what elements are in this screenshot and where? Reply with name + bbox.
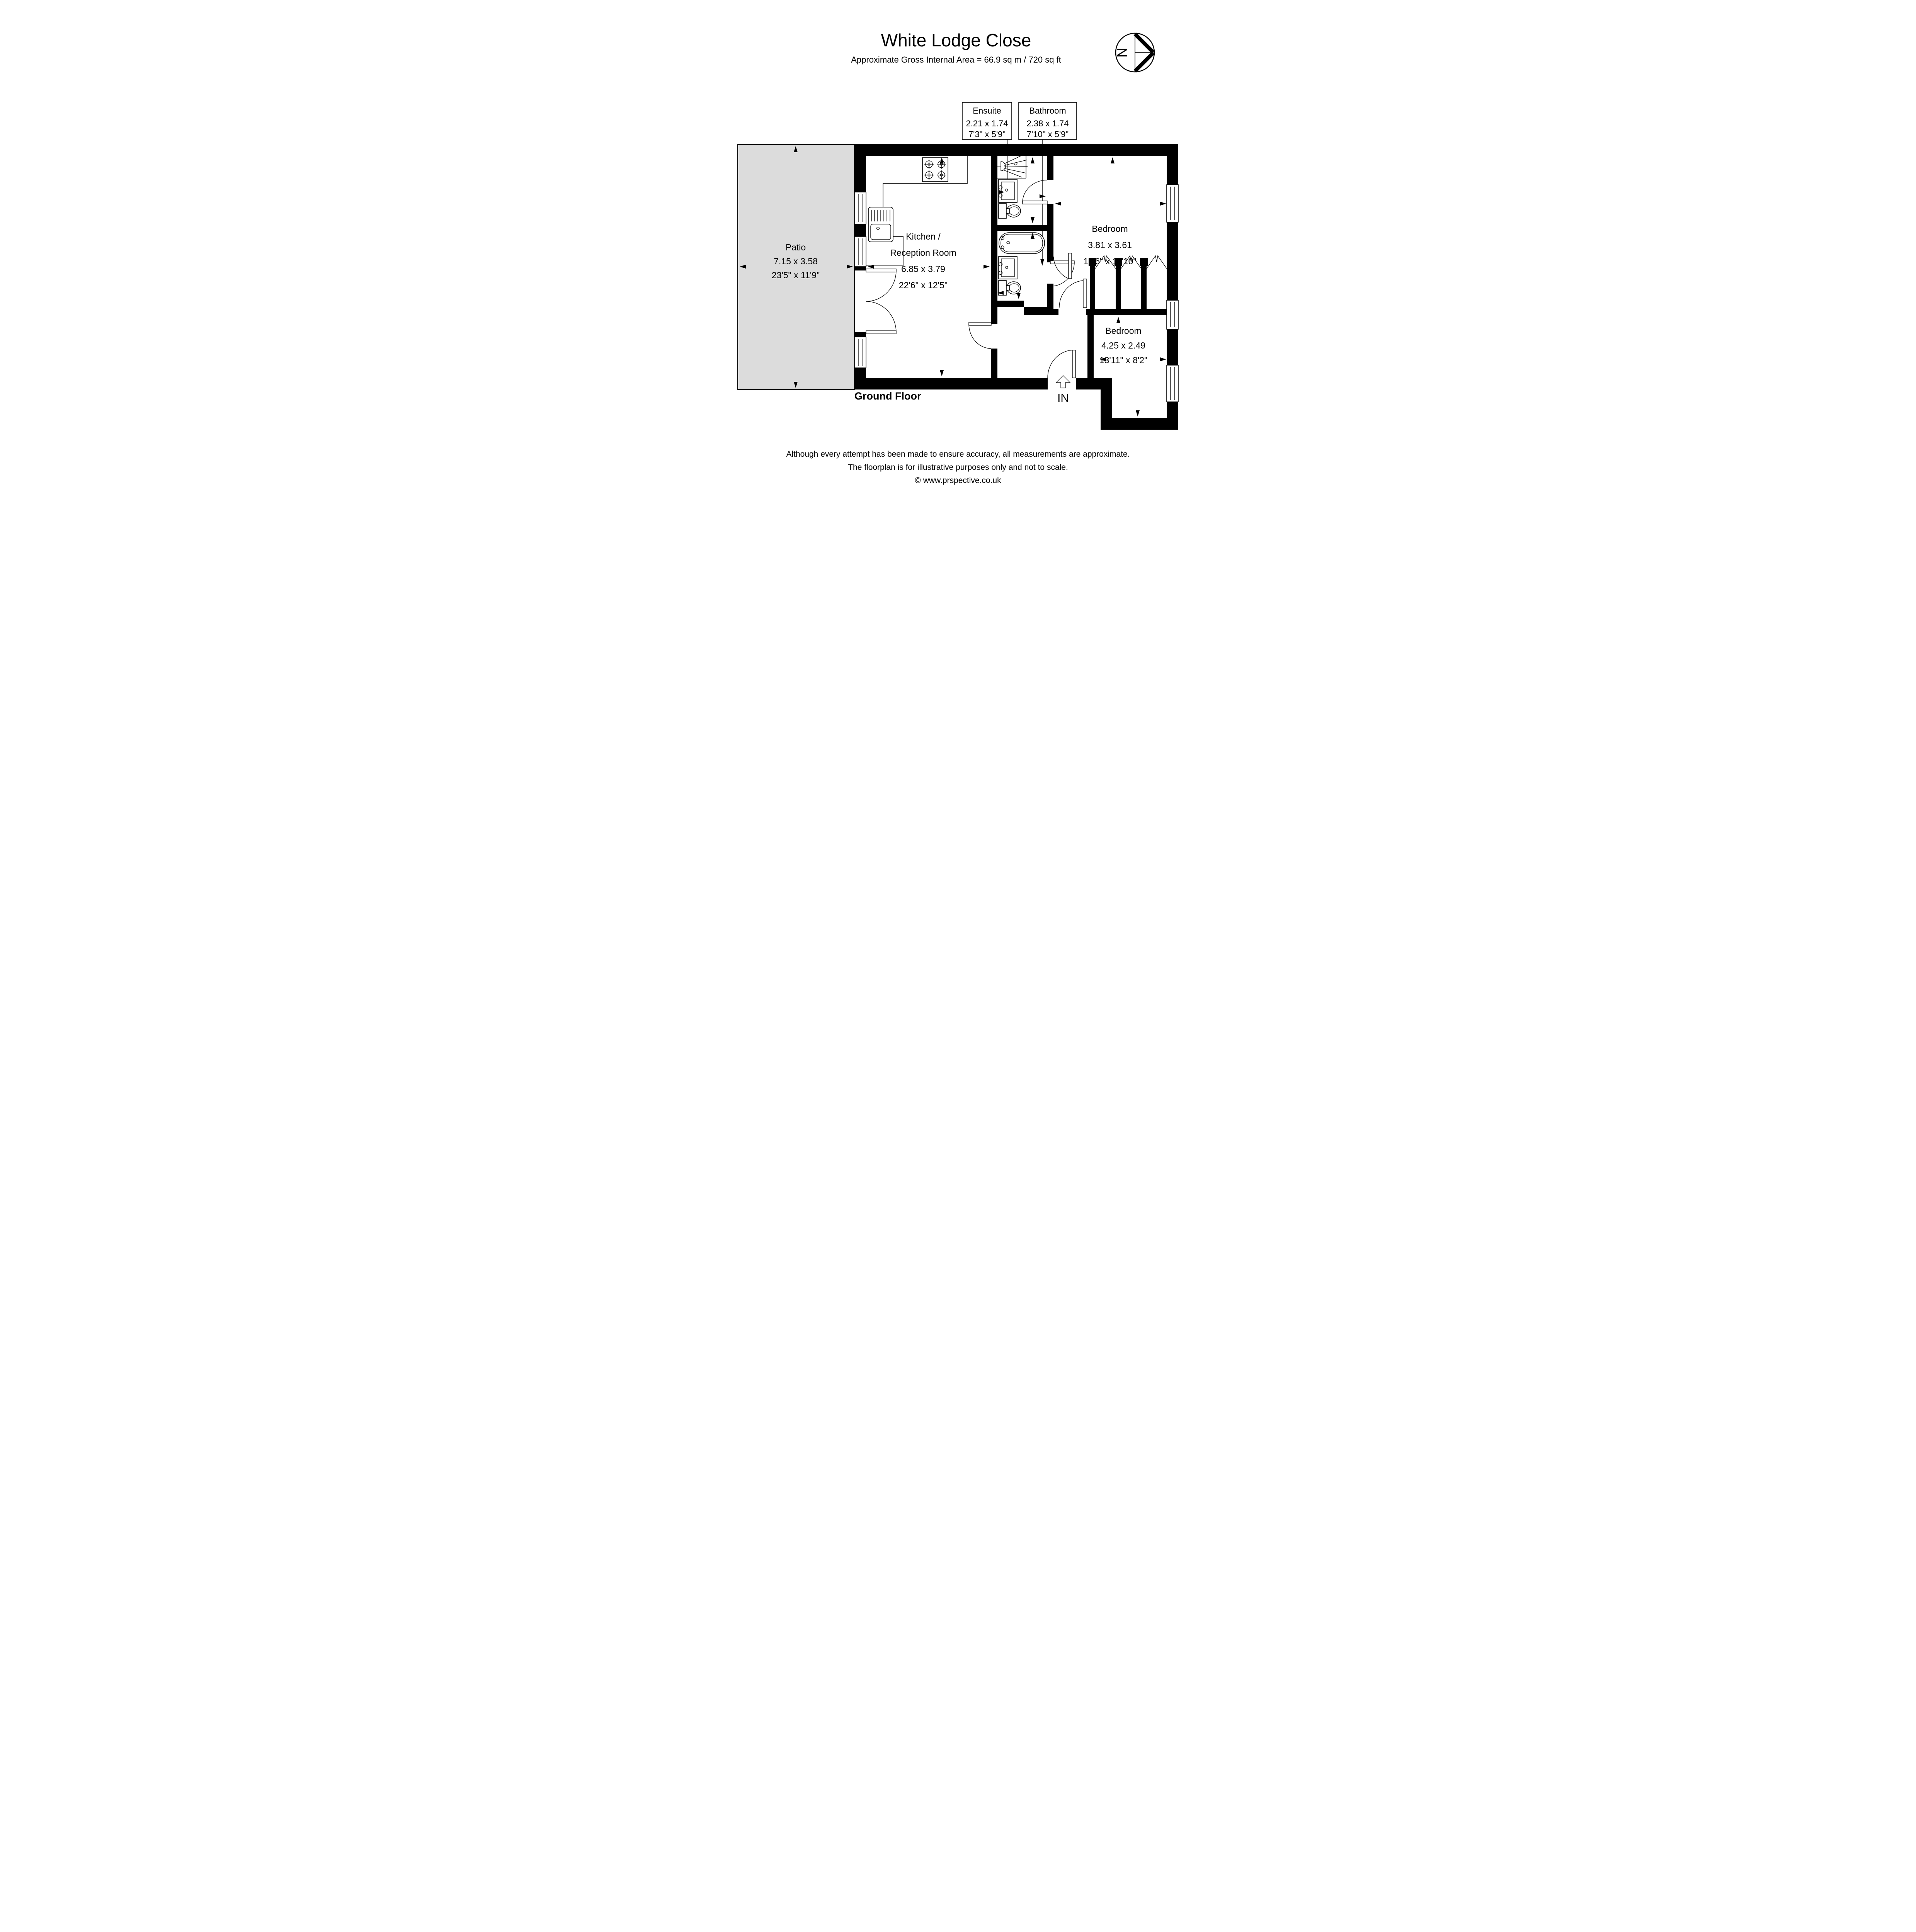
kitchen-name2: Reception Room	[890, 248, 956, 258]
window-kitchen-upper	[854, 192, 866, 224]
bathroom-name: Bathroom	[1029, 106, 1066, 116]
window-bedroom1	[1167, 185, 1178, 222]
floorplan-page: White Lodge Close Approximate Gross Inte…	[718, 0, 1198, 492]
ensuite-toilet-icon	[999, 204, 1021, 218]
door-kitchen-hall	[969, 322, 991, 349]
kitchen-name1: Kitchen /	[906, 231, 941, 241]
shower-icon	[997, 154, 1028, 178]
bedroom1-imperial: 12'6" x 11'10"	[1083, 256, 1136, 266]
kitchen-imperial: 22'6" x 12'5"	[899, 280, 948, 290]
stove-icon	[922, 158, 948, 182]
floorplan-canvas: White Lodge Close Approximate Gross Inte…	[718, 0, 1198, 492]
door-bedroom2	[1059, 279, 1087, 308]
kitchen-metric: 6.85 x 3.79	[901, 264, 945, 274]
footer-disclaimer: Although every attempt has been made to …	[786, 450, 1130, 485]
bedroom2-imperial: 13'11" x 8'2"	[1099, 355, 1147, 365]
bedroom2-label: Bedroom 4.25 x 2.49 13'11" x 8'2"	[1099, 326, 1147, 365]
door-entrance	[1048, 350, 1075, 378]
floor-label: Ground Floor	[854, 390, 921, 402]
bedroom1-name: Bedroom	[1092, 224, 1128, 234]
entrance-arrow-icon	[1056, 376, 1070, 388]
compass-n-label: N	[1114, 48, 1130, 58]
patio-area: Patio 7.15 x 3.58 23'5" x 11'9"	[738, 145, 854, 389]
patio-metric: 7.15 x 3.58	[774, 256, 818, 266]
ensuite-metric: 2.21 x 1.74	[966, 119, 1008, 128]
page-title: White Lodge Close	[881, 30, 1031, 50]
door-bedroom1	[1053, 253, 1072, 279]
ensuite-imperial: 7'3" x 5'9"	[968, 129, 1006, 139]
ensuite-name: Ensuite	[973, 106, 1001, 116]
page-subtitle: Approximate Gross Internal Area = 66.9 s…	[851, 55, 1061, 65]
entrance-label: IN	[1057, 392, 1069, 405]
bathroom-leader-arrow	[1040, 259, 1044, 266]
bathroom-imperial: 7'10" x 5'9"	[1027, 129, 1069, 139]
bathroom-metric: 2.38 x 1.74	[1027, 119, 1069, 128]
patio-imperial: 23'5" x 11'9"	[772, 270, 820, 280]
window-extension	[1167, 365, 1178, 402]
bathroom-basin-icon	[999, 257, 1017, 279]
sink-icon	[868, 207, 893, 242]
bath-icon	[999, 233, 1045, 253]
compass-north-icon: N	[1114, 33, 1154, 72]
ensuite-basin-icon	[999, 179, 1017, 202]
bedroom1-metric: 3.81 x 3.61	[1088, 240, 1132, 250]
bedroom2-metric: 4.25 x 2.49	[1101, 340, 1145, 350]
footer-line1: Although every attempt has been made to …	[786, 450, 1130, 459]
window-bedroom2	[1167, 300, 1178, 329]
bedroom2-name: Bedroom	[1105, 326, 1141, 336]
kitchen-label: Kitchen / Reception Room 6.85 x 3.79 22'…	[890, 231, 956, 290]
window-kitchen-south	[854, 337, 866, 368]
french-doors-patio	[866, 269, 896, 334]
bedroom1-label: Bedroom 3.81 x 3.61 12'6" x 11'10"	[1083, 224, 1136, 266]
window-kitchen-lower	[854, 236, 866, 267]
patio-name: Patio	[786, 242, 806, 252]
door-ensuite	[1023, 180, 1047, 204]
footer-copyright: © www.prspective.co.uk	[915, 476, 1001, 485]
entrance-in-marker: IN	[1056, 376, 1070, 405]
footer-line2: The floorplan is for illustrative purpos…	[848, 463, 1068, 472]
